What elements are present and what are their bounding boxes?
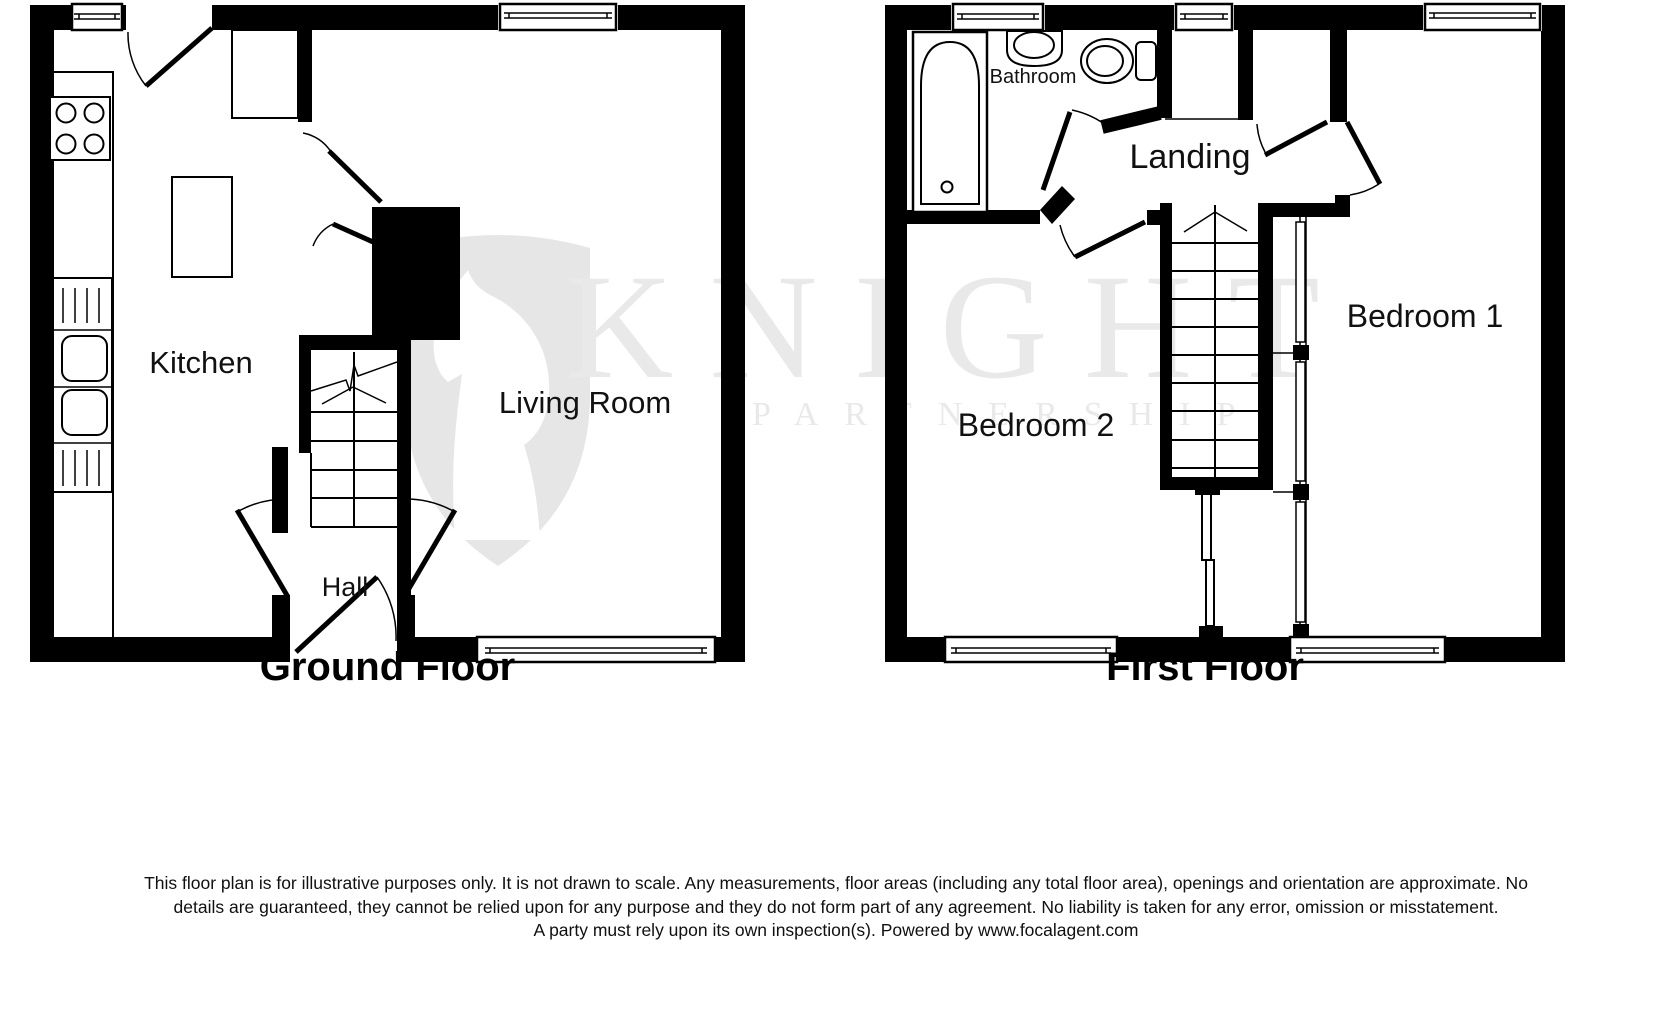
- hob-ring: [85, 104, 104, 123]
- door-arc: [1060, 225, 1075, 257]
- door-leaf: [1265, 122, 1327, 155]
- stair-treads: [1172, 205, 1258, 477]
- door-leaf: [1347, 122, 1380, 184]
- door-leaf: [404, 510, 455, 597]
- door-leaf: [146, 28, 212, 86]
- bathtub-icon: [913, 32, 987, 212]
- ground-floor-plan: Kitchen Living Room Hall: [30, 2, 745, 664]
- room-label-hall: Hall: [322, 572, 369, 602]
- disclaimer-line: This floor plan is for illustrative purp…: [0, 872, 1672, 896]
- sink-basin: [62, 390, 107, 435]
- partition-doors-icon: [1202, 494, 1214, 626]
- floorplan-page: KNIGHT PARTNERSHIP: [0, 0, 1672, 1008]
- door-jamb: [1040, 186, 1075, 224]
- door-arc: [404, 499, 455, 512]
- hall-living-room-door-icon: [404, 499, 455, 597]
- toilet-icon: [1081, 39, 1156, 83]
- wardrobe-door: [1296, 222, 1305, 342]
- kitchen-unit: [172, 177, 232, 277]
- door-arc: [313, 224, 333, 246]
- room-label-living-room: Living Room: [499, 385, 671, 420]
- door-arc: [128, 32, 146, 86]
- partition-leaf: [1202, 494, 1211, 560]
- staircase-icon: [311, 352, 397, 527]
- door-leaf: [329, 151, 381, 202]
- partition-leaf: [1206, 560, 1214, 626]
- door-leaf: [1075, 222, 1145, 257]
- room-label-kitchen: Kitchen: [149, 345, 252, 380]
- wardrobe-door: [1296, 362, 1305, 481]
- door-arc: [377, 577, 396, 641]
- wardrobe-door: [1296, 502, 1305, 622]
- room-label-bathroom: Bathroom: [990, 66, 1077, 88]
- basin-icon: [1007, 31, 1062, 66]
- door-arc: [303, 133, 331, 152]
- door-jamb: [388, 246, 405, 262]
- floorplan-drawing: Kitchen Living Room Hall: [0, 0, 1672, 1008]
- bedroom2-door-swing-icon: [1060, 222, 1145, 257]
- sink-unit: [53, 278, 112, 492]
- sink-basin: [62, 336, 107, 381]
- back-door-swing-icon: [128, 28, 212, 86]
- toilet-cistern: [1136, 42, 1156, 80]
- room-label-bedroom-2: Bedroom 2: [958, 407, 1115, 443]
- disclaimer-line: details are guaranteed, they cannot be r…: [0, 896, 1672, 920]
- bathroom-door-swing-icon: [1043, 110, 1113, 190]
- door-leaf: [1043, 112, 1070, 190]
- door-arc: [1257, 124, 1265, 152]
- hob-ring: [57, 104, 76, 123]
- hob-ring: [85, 135, 104, 154]
- sink-drainer-icon: [53, 278, 112, 492]
- door-jamb: [1102, 113, 1160, 127]
- bedroom1-door-swing-icon: [1347, 122, 1380, 195]
- disclaimer: This floor plan is for illustrative purp…: [0, 872, 1672, 943]
- room-label-bedroom-1: Bedroom 1: [1347, 298, 1504, 334]
- first-floor-plan: Bathroom Landing Bedroom 2 Bedroom 1: [885, 2, 1565, 664]
- room-label-landing: Landing: [1129, 138, 1250, 176]
- kitchen-cupboard: [232, 30, 298, 118]
- hob-icon: [50, 97, 110, 160]
- door-arc: [1350, 184, 1379, 195]
- stair-treads: [311, 352, 397, 527]
- wardrobe-icon: [1273, 217, 1306, 637]
- hob-ring: [57, 135, 76, 154]
- staircase-icon: [1172, 205, 1258, 477]
- first-floor-title: First Floor: [875, 645, 1535, 690]
- disclaimer-line: A party must rely upon its own inspectio…: [0, 919, 1672, 943]
- ground-floor-title: Ground Floor: [30, 645, 745, 690]
